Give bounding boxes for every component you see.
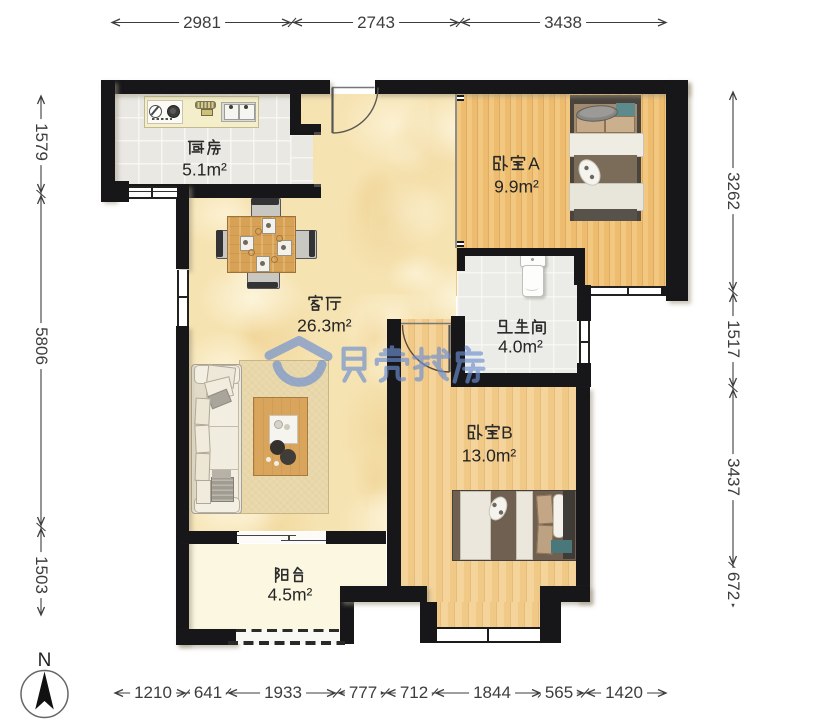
svg-text:N: N — [38, 650, 52, 671]
